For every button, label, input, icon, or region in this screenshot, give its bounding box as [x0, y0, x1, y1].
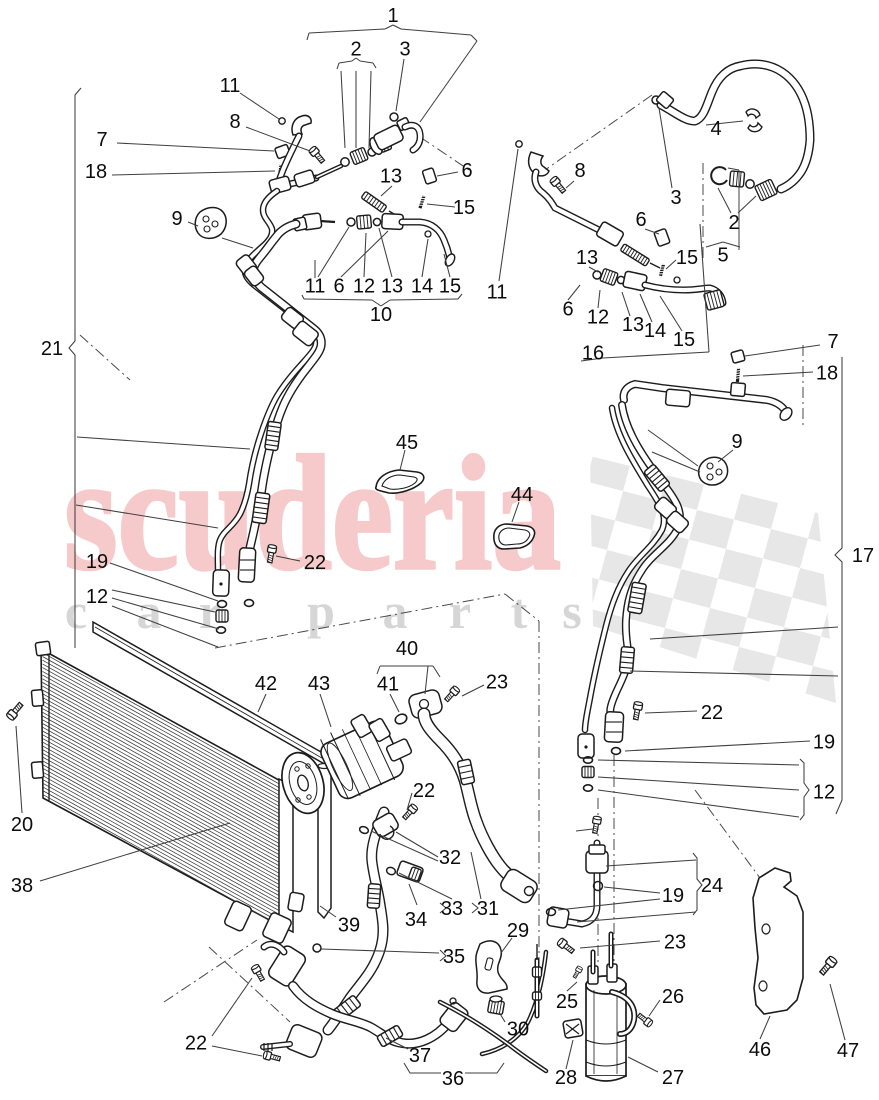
svg-text:29: 29 [507, 920, 529, 942]
svg-text:3: 3 [399, 39, 410, 61]
svg-text:8: 8 [229, 111, 240, 133]
svg-text:4: 4 [710, 118, 721, 140]
svg-text:42: 42 [255, 673, 277, 695]
svg-text:18: 18 [85, 161, 107, 183]
svg-text:46: 46 [749, 1039, 771, 1061]
svg-text:14: 14 [644, 320, 666, 342]
svg-text:33: 33 [441, 898, 463, 920]
svg-text:7: 7 [96, 129, 107, 151]
svg-text:s: s [562, 583, 581, 639]
svg-text:23: 23 [664, 932, 686, 954]
svg-text:20: 20 [11, 814, 33, 836]
svg-text:17: 17 [852, 545, 874, 567]
svg-text:1: 1 [387, 5, 398, 27]
svg-text:13: 13 [622, 314, 644, 336]
svg-text:5: 5 [717, 245, 728, 267]
svg-text:19: 19 [86, 551, 108, 573]
svg-text:43: 43 [308, 673, 330, 695]
svg-text:34: 34 [405, 909, 427, 931]
svg-text:41: 41 [377, 674, 399, 696]
svg-text:21: 21 [41, 338, 63, 360]
svg-text:22: 22 [185, 1033, 207, 1055]
svg-text:9: 9 [171, 208, 182, 230]
svg-text:31: 31 [477, 898, 499, 920]
svg-text:6: 6 [562, 299, 573, 321]
svg-text:12: 12 [813, 782, 835, 804]
svg-text:6: 6 [333, 276, 344, 298]
svg-text:18: 18 [816, 363, 838, 385]
svg-text:15: 15 [676, 247, 698, 269]
svg-text:r: r [449, 583, 471, 639]
svg-text:scuderia: scuderia [64, 424, 561, 604]
svg-text:13: 13 [381, 276, 403, 298]
svg-text:12: 12 [587, 307, 609, 329]
svg-text:12: 12 [353, 276, 375, 298]
svg-text:30: 30 [507, 1019, 529, 1041]
svg-text:19: 19 [662, 885, 684, 907]
svg-text:2: 2 [728, 212, 739, 234]
svg-text:40: 40 [396, 638, 418, 660]
svg-text:22: 22 [701, 702, 723, 724]
svg-text:26: 26 [662, 986, 684, 1008]
svg-text:47: 47 [837, 1040, 859, 1062]
svg-text:45: 45 [396, 432, 418, 454]
svg-text:12: 12 [86, 586, 108, 608]
svg-text:13: 13 [576, 247, 598, 269]
svg-text:22: 22 [413, 780, 435, 802]
svg-text:p: p [307, 583, 335, 639]
svg-text:11: 11 [220, 75, 241, 97]
svg-text:23: 23 [486, 672, 508, 694]
svg-text:38: 38 [11, 875, 33, 897]
svg-text:2: 2 [350, 39, 361, 61]
svg-text:27: 27 [662, 1067, 684, 1089]
svg-text:7: 7 [827, 331, 838, 353]
svg-text:28: 28 [555, 1067, 577, 1089]
svg-text:24: 24 [701, 875, 723, 897]
svg-text:14: 14 [411, 276, 433, 298]
svg-text:6: 6 [635, 209, 646, 231]
svg-text:22: 22 [304, 552, 326, 574]
svg-text:35: 35 [443, 946, 465, 968]
svg-text:8: 8 [574, 160, 585, 182]
svg-text:44: 44 [511, 484, 533, 506]
svg-text:15: 15 [673, 329, 695, 351]
svg-text:19: 19 [813, 732, 835, 754]
svg-text:15: 15 [453, 197, 475, 219]
svg-text:c: c [65, 583, 87, 639]
svg-text:32: 32 [439, 847, 461, 869]
svg-text:36: 36 [442, 1068, 464, 1090]
svg-text:t: t [511, 583, 528, 639]
svg-text:16: 16 [582, 343, 604, 365]
svg-text:11: 11 [305, 276, 326, 298]
svg-text:11: 11 [487, 282, 508, 304]
svg-text:13: 13 [380, 166, 402, 188]
svg-text:3: 3 [670, 187, 681, 209]
svg-text:6: 6 [461, 160, 472, 182]
svg-text:9: 9 [731, 431, 742, 453]
svg-text:10: 10 [370, 304, 392, 326]
svg-text:25: 25 [556, 991, 578, 1013]
svg-text:37: 37 [409, 1045, 431, 1067]
svg-text:15: 15 [439, 276, 461, 298]
svg-text:a: a [383, 583, 408, 639]
svg-text:39: 39 [338, 915, 360, 937]
